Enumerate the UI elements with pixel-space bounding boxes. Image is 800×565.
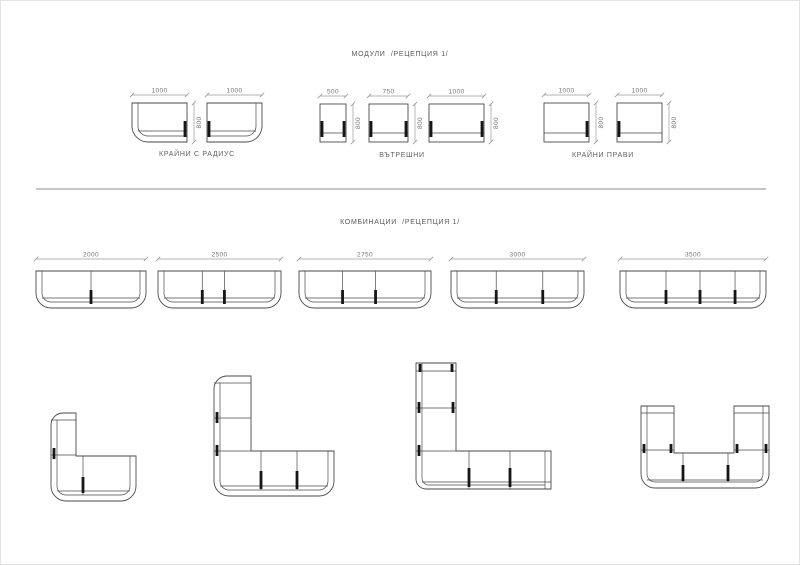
dimension-vertical: 800 [594, 101, 605, 144]
combination-corner-L-straight-ends [416, 363, 551, 489]
leg-mark [184, 121, 187, 137]
module-internal [369, 104, 408, 142]
dimension-horizontal: 3500 [618, 252, 768, 262]
leg-mark [736, 444, 739, 453]
dim-label: 1000 [631, 88, 647, 95]
dim-label: 1000 [448, 89, 464, 96]
leg-mark [208, 121, 211, 137]
leg-mark [643, 444, 646, 453]
combination-corner-L-low [51, 413, 136, 501]
module-straight-end [544, 103, 589, 142]
leg-mark [321, 121, 324, 137]
dimension-horizontal: 500 [318, 89, 348, 99]
leg-mark [223, 290, 226, 304]
module-internal [429, 104, 484, 142]
leg-mark [82, 477, 85, 493]
dim-label: 2500 [211, 252, 227, 259]
dim-label: 1000 [226, 88, 242, 95]
leg-mark [418, 445, 421, 456]
leg-mark [90, 290, 93, 304]
dim-label: 800 [493, 117, 500, 129]
dimension-horizontal: 2500 [156, 252, 283, 262]
dimension-vertical: 800 [413, 102, 424, 144]
leg-mark [727, 465, 730, 481]
leg-mark [509, 468, 512, 487]
dim-label: 800 [196, 116, 203, 128]
leg-mark [260, 471, 263, 489]
dimension-vertical: 800 [192, 101, 203, 144]
leg-mark [682, 465, 685, 481]
dimension-horizontal: 750 [367, 89, 410, 99]
combination-straight [299, 271, 431, 308]
leg-mark [53, 448, 56, 459]
dim-label: 800 [671, 116, 678, 128]
dimension-horizontal: 1000 [205, 88, 264, 98]
dimension-horizontal: 2000 [34, 252, 148, 262]
technical-drawing: 1000100050075010001000100020002500275030… [1, 1, 800, 565]
leg-mark [699, 290, 702, 304]
leg-mark [216, 445, 219, 456]
dimension-horizontal: 1000 [542, 88, 591, 98]
leg-mark [341, 290, 344, 304]
leg-mark [618, 121, 621, 137]
combination-straight [158, 271, 281, 308]
leg-mark [216, 412, 219, 423]
dimension-horizontal: 2750 [297, 252, 433, 262]
module-straight-end [617, 103, 662, 142]
dimension-vertical: 800 [351, 102, 362, 144]
combination-straight [451, 271, 584, 308]
dim-label: 3000 [509, 252, 525, 259]
combination-straight [620, 271, 766, 308]
leg-mark [765, 444, 768, 453]
leg-mark [451, 364, 454, 372]
dimension-horizontal: 1000 [615, 88, 664, 98]
leg-mark [495, 290, 498, 304]
dim-label: 800 [355, 117, 362, 129]
leg-mark [370, 121, 373, 137]
leg-mark [430, 121, 433, 137]
leg-mark [468, 468, 471, 487]
dim-label: 750 [382, 89, 394, 96]
combination-corner-L-high [214, 376, 334, 496]
dim-label: 1000 [558, 88, 574, 95]
module-radius-end [207, 103, 262, 142]
leg-mark [418, 402, 421, 413]
dim-label: 800 [598, 116, 605, 128]
leg-mark [586, 121, 589, 137]
dim-label: 1000 [151, 88, 167, 95]
leg-mark [405, 121, 408, 137]
leg-mark [481, 121, 484, 137]
dimension-horizontal: 1000 [130, 88, 189, 98]
module-internal [320, 104, 346, 142]
dim-label: 3500 [685, 252, 701, 259]
dim-label: 2750 [357, 252, 373, 259]
leg-mark [419, 364, 422, 372]
leg-mark [541, 290, 544, 304]
leg-mark [665, 290, 668, 304]
leg-mark [452, 402, 455, 413]
dimension-horizontal: 3000 [449, 252, 586, 262]
dim-label: 500 [327, 89, 339, 96]
dim-label: 2000 [83, 252, 99, 259]
leg-mark [343, 121, 346, 137]
leg-mark [296, 471, 299, 489]
leg-mark [670, 444, 673, 453]
combination-U-shape [641, 406, 769, 488]
dimension-vertical: 800 [489, 102, 500, 144]
dimension-vertical: 800 [667, 101, 678, 144]
dim-label: 800 [417, 117, 424, 129]
dimension-horizontal: 1000 [427, 89, 486, 99]
combination-straight [36, 271, 146, 308]
module-radius-end [132, 103, 187, 142]
leg-mark [734, 290, 737, 304]
leg-mark [374, 290, 377, 304]
leg-mark [201, 290, 204, 304]
drawing-page: МОДУЛИ /РЕЦЕПЦИЯ 1/ КОМБИНАЦИИ /РЕЦЕПЦИЯ… [0, 0, 800, 565]
